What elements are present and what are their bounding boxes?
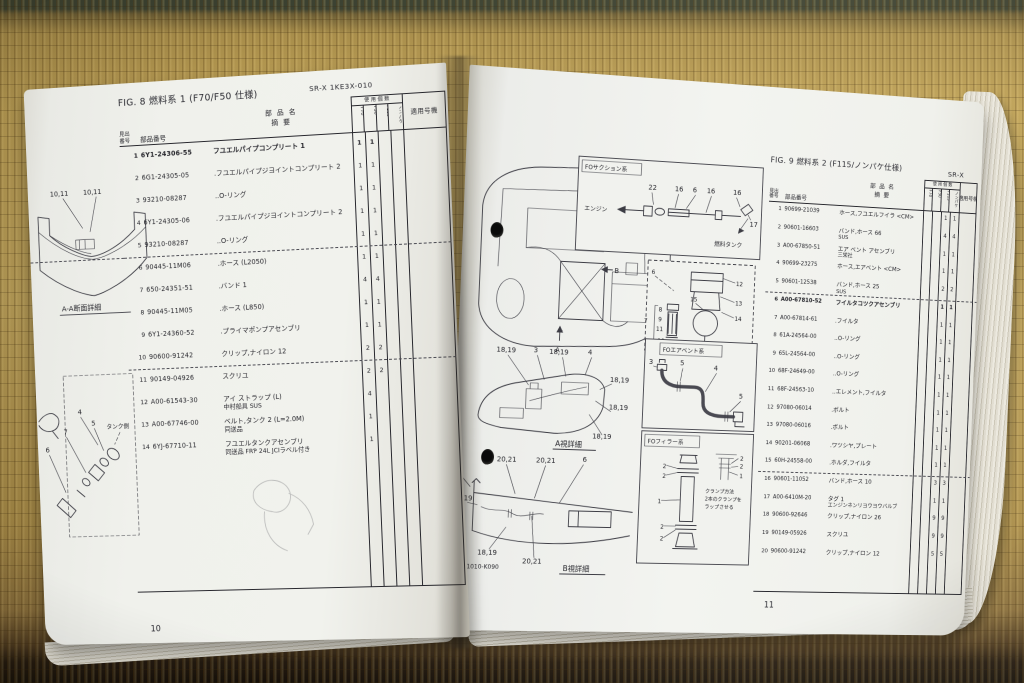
callout-label: 8 <box>658 307 662 314</box>
right-page: FIG. 9 燃料系 2 (F115/ノンパケ仕様) SR-X B A FOサク… <box>446 65 984 636</box>
row-qty <box>392 176 406 200</box>
header-item-no: 見出 番号 <box>769 170 786 202</box>
callout-label: 16 <box>733 189 742 197</box>
row-qty <box>383 268 397 291</box>
callout-label: 6 <box>693 186 698 194</box>
callout-label: 20,21 <box>536 456 556 465</box>
row-part-name: フユエルタンクアセンブリ同送品 FRP 24L JCIラベル付き <box>225 429 366 457</box>
table-filler <box>132 449 465 592</box>
row-serial <box>405 173 450 198</box>
row-item-number: 2 <box>768 220 784 239</box>
view-b-caption: B視詳細 <box>562 563 589 573</box>
row-item-number: 16 <box>757 472 773 490</box>
row-qty: 1 <box>372 314 386 337</box>
row-serial <box>953 354 971 372</box>
row-item-number: 6 <box>124 258 146 281</box>
photo-of-parts-catalog: { "scene": { "left_page_number": "10", "… <box>0 0 1024 683</box>
left-parts-table: 見出 番号 部品番号 部 品 名 摘 要 使 用 個 数 F70 F50 F11… <box>118 91 466 593</box>
header-qty-columns: F70 F50 F115 ノンパケ <box>924 188 959 212</box>
qty-col-nonpake: ノンパケ <box>388 104 403 130</box>
row-item-number: 20 <box>755 544 771 562</box>
row-serial <box>953 337 971 355</box>
view-b-detail-diagram: 20,21 20,21 6 3 18,19 18,19 20,21 B視詳細 E… <box>448 448 646 579</box>
row-qty: 1 <box>357 246 371 269</box>
row-item-number: 7 <box>764 310 780 329</box>
row-serial <box>414 380 459 405</box>
row-part-name: クリップ,ナイロン 26 <box>827 510 912 530</box>
row-item-number: 5 <box>123 235 145 258</box>
callout-label: 5 <box>91 420 96 428</box>
row-qty <box>393 199 407 223</box>
callout-label: 12 <box>736 281 744 288</box>
row-part-number: 90601-11052 <box>773 472 829 491</box>
fo-suction-diagram: FOサクション系 エンジン 22 16 6 16 16 17 燃料タンク <box>575 156 764 261</box>
row-qty <box>400 359 414 382</box>
callout-label: 2 <box>660 524 664 531</box>
row-serial <box>952 372 970 390</box>
row-item-number: 11 <box>761 382 777 401</box>
row-qty: 2 <box>361 338 375 361</box>
fo-airvent-diagram: FOエアベント系 3 5 4 5 <box>641 338 757 432</box>
row-qty: 1 <box>370 246 384 269</box>
header-part-name: 部 品 名 摘 要 <box>840 174 925 210</box>
row-item-number: 11 <box>129 370 151 393</box>
fo-filler-diagram: FOフィラー系 2 2 1 2 2 2 2 1 クランプ方法 2本のクランプを … <box>636 430 754 565</box>
callout-label: 9 <box>658 316 662 323</box>
row-part-name: タグ 1エンジンネンリヨウヨウバルブ <box>827 492 912 512</box>
view-a-caption: A視詳細 <box>555 438 582 449</box>
row-item-number: 1 <box>120 146 142 170</box>
callout-label: 22 <box>648 184 657 192</box>
callout-label: 2 <box>663 463 667 470</box>
row-serial <box>412 334 457 359</box>
row-item-number: 17 <box>757 490 773 509</box>
callout-label: 10,11 <box>83 188 102 197</box>
callout-label: 20,21 <box>522 557 542 565</box>
row-serial <box>957 249 975 268</box>
callout-label: 7 <box>644 318 648 325</box>
row-serial <box>406 196 451 221</box>
callout-label: 18,19 <box>496 346 516 355</box>
row-serial <box>949 442 967 460</box>
header-name-line2: 摘 要 <box>874 192 890 201</box>
row-qty <box>390 428 404 451</box>
callout-label: 18,19 <box>549 348 569 357</box>
row-qty: 4 <box>362 383 376 406</box>
row-qty <box>399 336 413 359</box>
row-part-number: 60H-24558-00 <box>774 454 830 474</box>
row-qty <box>388 382 402 405</box>
row-qty: 1 <box>359 292 373 315</box>
row-qty <box>387 359 401 382</box>
row-part-number: 97080-06016 <box>775 419 831 439</box>
callout-label: 17 <box>749 221 758 229</box>
callout-label: 1 <box>657 498 661 505</box>
row-serial <box>410 288 455 313</box>
row-serial <box>946 513 964 531</box>
row-serial <box>950 425 968 443</box>
row-qty: 1 <box>354 178 368 201</box>
row-part-number: 90149-05926 <box>771 526 827 545</box>
left-page-number: 10 <box>150 624 161 634</box>
callout-label: 16 <box>707 187 716 195</box>
callout-label: 18,19 <box>477 549 497 557</box>
row-serial <box>404 150 449 175</box>
row-part-name: スクリユ <box>826 528 911 548</box>
callout-label: 2 <box>740 464 744 471</box>
row-serial <box>408 242 453 267</box>
row-part-number: 90445-11M05 <box>147 299 220 325</box>
right-page-number: 11 <box>764 601 774 611</box>
qty-col-f70: F70 <box>351 106 364 132</box>
callout-label: 18,19 <box>592 433 612 442</box>
callout-label: 5 <box>680 359 685 367</box>
row-serial <box>416 426 461 450</box>
tank-side-label: タンク側 <box>106 422 129 431</box>
row-item-number: 8 <box>126 303 148 326</box>
row-part-number: 65L-24564-00 <box>778 347 834 367</box>
row-item-number: 13 <box>760 418 776 436</box>
row-qty <box>382 245 396 268</box>
row-qty <box>379 154 393 178</box>
row-serial <box>954 319 972 337</box>
row-part-number: 61A-24564-00 <box>779 329 835 349</box>
row-qty: 2 <box>374 360 388 383</box>
callout-label: 3 <box>649 358 654 366</box>
row-qty <box>377 429 391 452</box>
table-filler <box>753 562 962 594</box>
filler-box-title: FOフィラー系 <box>647 437 683 446</box>
row-qty: 1 <box>352 132 366 156</box>
row-serial <box>956 266 974 284</box>
row-qty <box>381 222 395 246</box>
row-serial <box>415 403 460 428</box>
row-qty: 1 <box>368 200 382 223</box>
row-qty <box>380 199 394 223</box>
row-serial <box>947 495 965 513</box>
row-serial <box>403 127 448 152</box>
row-part-number: 90149-04926 <box>150 367 223 392</box>
row-item-number: 3 <box>767 238 783 257</box>
row-item-number: 14 <box>759 436 775 454</box>
row-part-number: 90201-06068 <box>775 436 831 456</box>
row-item-number: 15 <box>758 454 774 472</box>
row-qty: 1 <box>356 224 370 247</box>
row-serial <box>957 231 975 250</box>
row-qty: 1 <box>365 132 379 156</box>
row-qty: 4 <box>370 269 384 292</box>
row-qty: 2 <box>373 337 387 360</box>
row-qty <box>396 267 410 290</box>
row-qty <box>403 428 417 451</box>
row-part-name: クリップ,ナイロン 12 <box>825 546 910 565</box>
row-qty: 1 <box>363 406 377 429</box>
header-qty-group: 使 用 個 数 F70 F50 F115 ノンパケ <box>351 93 404 132</box>
header-item-line2: 番号 <box>769 194 785 200</box>
row-item-number: 7 <box>125 280 147 303</box>
callout-label: 7 <box>63 428 67 436</box>
right-parts-table: 見出 番号 部品番号 部 品 名 摘 要 使 用 個 数 F70 F50 F11… <box>753 170 977 595</box>
row-part-name: バンド,ホース 10 <box>828 474 913 494</box>
row-item-number: 12 <box>130 392 152 415</box>
row-part-number: A00-67746-00 <box>151 412 224 437</box>
row-item-number: 4 <box>122 213 144 236</box>
row-item-number: 4 <box>766 256 782 275</box>
row-qty: 2 <box>362 360 376 383</box>
left-doc-code: SR-X 1KE3X-010 <box>309 80 373 93</box>
row-qty: 4 <box>358 269 372 292</box>
callout-label: 6 <box>582 456 587 464</box>
row-item-number: 2 <box>121 168 143 192</box>
row-item-number: 10 <box>128 347 150 370</box>
row-qty <box>375 383 389 406</box>
row-serial <box>955 284 973 303</box>
row-part-number: 68F-24563-10 <box>777 383 833 403</box>
row-item-number: 13 <box>131 415 153 438</box>
engine-side-label: エンジン <box>584 205 607 213</box>
callout-label: 5 <box>739 393 743 401</box>
view-a-detail-diagram: 18,19 3 18,19 4 18,19 18,19 18,19 A視詳細 <box>469 341 646 454</box>
callout-label: 3 <box>534 346 539 354</box>
row-item-number: 12 <box>760 400 776 419</box>
callout-label: 1 <box>739 473 743 480</box>
row-serial <box>955 302 973 320</box>
row-qty <box>376 406 390 429</box>
row-qty: 1 <box>355 201 369 224</box>
table-body: 190699-21039ホース,フユエルフイラ <CM>11290601-166… <box>755 202 977 566</box>
header-qty-group: 使 用 個 数 F70 F50 F115 ノンパケ <box>923 180 960 212</box>
row-qty <box>389 405 403 428</box>
row-qty: 1 <box>366 154 380 178</box>
callout-label: 4 <box>588 349 593 357</box>
callout-label: 11 <box>656 326 664 333</box>
row-item-number: 6 <box>765 292 781 311</box>
header-serial: 適用号機 <box>959 182 978 213</box>
row-part-number: A00-6410M-20 <box>772 490 828 510</box>
callout-label: 13 <box>735 300 743 307</box>
right-doc-code: SR-X <box>948 170 965 180</box>
callout-label: 14 <box>734 316 742 323</box>
row-part-number: A00-61543-30 <box>150 389 223 414</box>
row-qty <box>378 131 392 155</box>
row-qty <box>385 314 399 337</box>
row-qty <box>402 405 416 428</box>
row-part-number: 68F-24649-00 <box>777 365 833 385</box>
row-serial <box>407 219 452 244</box>
row-item-number: 14 <box>131 437 153 460</box>
row-qty <box>398 313 412 336</box>
row-serial <box>946 530 964 548</box>
row-serial <box>411 311 456 336</box>
table-body: 16Y1-24306-55フユエルパイプコンプリート 11126G1-24305… <box>120 127 460 460</box>
callout-label: 2 <box>660 536 664 543</box>
row-qty <box>395 244 409 268</box>
header-item-no: 見出 番号 <box>118 110 140 146</box>
row-qty <box>397 290 411 313</box>
row-part-number: 97080-06014 <box>776 401 832 421</box>
callout-label: 18,19 <box>609 404 628 413</box>
row-serial <box>948 460 966 478</box>
row-serial <box>951 390 969 408</box>
row-item-number: 5 <box>765 274 781 293</box>
qty-col-nonpake: ノンパケ <box>948 190 958 212</box>
callout-label: 15 <box>690 296 698 303</box>
row-serial <box>948 477 966 495</box>
fuel-tank-label: 燃料タンク <box>714 240 742 249</box>
row-qty: 1 <box>369 223 383 246</box>
row-qty: 1 <box>367 177 381 201</box>
row-serial <box>958 213 976 232</box>
row-part-number: 6Y1-24360-52 <box>148 322 221 348</box>
row-qty <box>401 382 415 405</box>
view-b-direction-label: B <box>614 267 619 275</box>
tank-fitting-diagram: 4 5 7 6 タンク側 <box>35 358 143 563</box>
row-qty: 1 <box>371 291 385 314</box>
callout-label: 20,21 <box>497 455 517 464</box>
row-qty <box>384 291 398 314</box>
row-item-number: 9 <box>762 346 778 365</box>
callout-label: 6 <box>651 269 655 276</box>
row-item-number: 9 <box>127 325 149 348</box>
row-part-number: 90600-91242 <box>770 544 826 563</box>
row-item-number: 10 <box>762 364 778 383</box>
row-item-number: 1 <box>768 202 784 221</box>
row-serial <box>950 407 968 425</box>
row-qty <box>379 177 393 201</box>
row-item-number: 19 <box>755 526 771 544</box>
row-serial <box>409 265 454 290</box>
row-item-number: 18 <box>756 508 772 526</box>
callout-label: 6 <box>45 446 49 454</box>
row-qty <box>390 130 404 154</box>
header-item-line2: 番号 <box>119 138 140 145</box>
callout-label: 2 <box>662 473 666 480</box>
row-item-number: 8 <box>763 328 779 347</box>
callout-label: 18,19 <box>610 376 629 385</box>
row-qty <box>391 153 405 177</box>
row-qty: 1 <box>360 315 374 338</box>
left-page: FIG. 8 燃料系 1 (F70/F50 仕様) SR-X 1KE3X-010… <box>24 63 470 646</box>
header-name-line2: 摘 要 <box>271 118 291 129</box>
callout-label: 2 <box>740 456 744 463</box>
callout-label: 10,11 <box>50 190 69 199</box>
diagram-caption: A-A断面詳細 <box>62 303 102 314</box>
row-qty: 1 <box>364 429 378 452</box>
row-item-number: 3 <box>121 191 143 215</box>
row-qty <box>386 337 400 360</box>
callout-label: 16 <box>675 185 684 193</box>
header-qty-columns: F70 F50 F115 ノンパケ <box>352 104 403 133</box>
header-serial: 適用号機 <box>402 91 447 130</box>
clamp-note-line3: ラップさせる <box>704 503 733 511</box>
row-part-number: 6YJ-67710-11 <box>152 434 225 459</box>
row-part-number: 90600-92646 <box>772 508 828 527</box>
row-serial <box>945 548 963 566</box>
row-serial <box>413 357 458 382</box>
row-part-number: 90600-91242 <box>149 344 222 370</box>
callout-label: 4 <box>78 408 82 416</box>
row-qty <box>394 222 408 246</box>
row-qty: 1 <box>353 155 367 179</box>
